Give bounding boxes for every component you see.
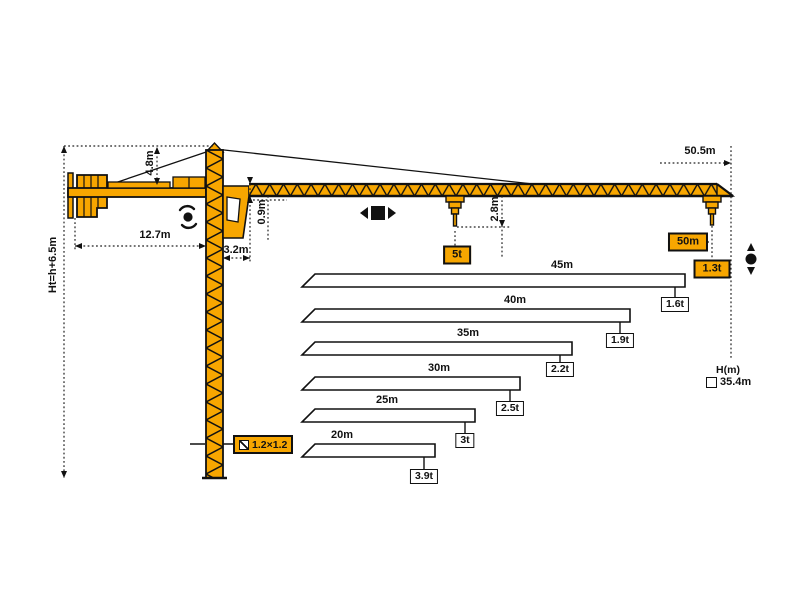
height-axis-label: H(m) xyxy=(716,364,740,376)
bar-20m xyxy=(302,444,435,457)
capacity-tag-30m: 2.5t xyxy=(496,401,524,416)
jib-depth-label: 0.9m xyxy=(256,199,268,224)
capacity-bars xyxy=(302,274,685,457)
bar-label-45m: 45m xyxy=(551,259,573,271)
trolley-hook-mid xyxy=(446,196,464,226)
bar-45m xyxy=(302,274,685,287)
tip-capacity-box: 1.3t xyxy=(694,260,731,279)
min-radius-label: 3.2m xyxy=(223,244,248,256)
trolley-travel-icon xyxy=(360,206,396,220)
bar-40m xyxy=(302,309,630,322)
max-capacity-box: 5t xyxy=(443,246,471,265)
hook-drop-label: 2.8m xyxy=(489,196,501,221)
cab-window xyxy=(227,197,240,222)
hoist-icon xyxy=(746,243,757,275)
bar-35m xyxy=(302,342,572,355)
jib xyxy=(249,184,733,196)
checkbox-icon xyxy=(706,377,717,388)
capacity-tag-20m: 3.9t xyxy=(410,469,438,484)
apex-height-label: 4.8m xyxy=(144,150,156,175)
freestanding-height-value: 35.4m xyxy=(720,376,751,388)
mast-section-box: 1.2×1.2 xyxy=(233,435,293,454)
mast-section-value: 1.2×1.2 xyxy=(252,439,287,451)
trolley-hook-tip xyxy=(703,196,721,225)
section-symbol-icon xyxy=(239,440,249,450)
total-height-label: Ht=h+6.5m xyxy=(47,237,59,293)
capacity-tag-45m: 1.6t xyxy=(661,297,689,312)
bar-30m xyxy=(302,377,520,390)
bar-label-25m: 25m xyxy=(376,394,398,406)
bar-label-20m: 20m xyxy=(331,429,353,441)
rotate-icon xyxy=(180,206,196,228)
crane-load-diagram: Ht=h+6.5m 4.8m 12.7m 3.2m 0.9m 2.8m 50.5… xyxy=(0,0,800,600)
capacity-tag-40m: 1.9t xyxy=(606,333,634,348)
counterjib-beam xyxy=(68,188,206,197)
operator-cab xyxy=(223,186,249,238)
capacity-tag-35m: 2.2t xyxy=(546,362,574,377)
bar-25m xyxy=(302,409,475,422)
max-radius-label: 50.5m xyxy=(684,145,715,157)
bar-label-35m: 35m xyxy=(457,327,479,339)
bar-label-30m: 30m xyxy=(428,362,450,374)
tip-radius-box: 50m xyxy=(668,233,708,252)
counterjib-length-label: 12.7m xyxy=(139,229,170,241)
freestanding-height-row: 35.4m xyxy=(706,376,751,388)
counter-jib xyxy=(68,173,206,218)
machinery-deck xyxy=(108,182,170,188)
bar-label-40m: 40m xyxy=(504,294,526,306)
capacity-tag-25m: 3t xyxy=(455,433,474,448)
